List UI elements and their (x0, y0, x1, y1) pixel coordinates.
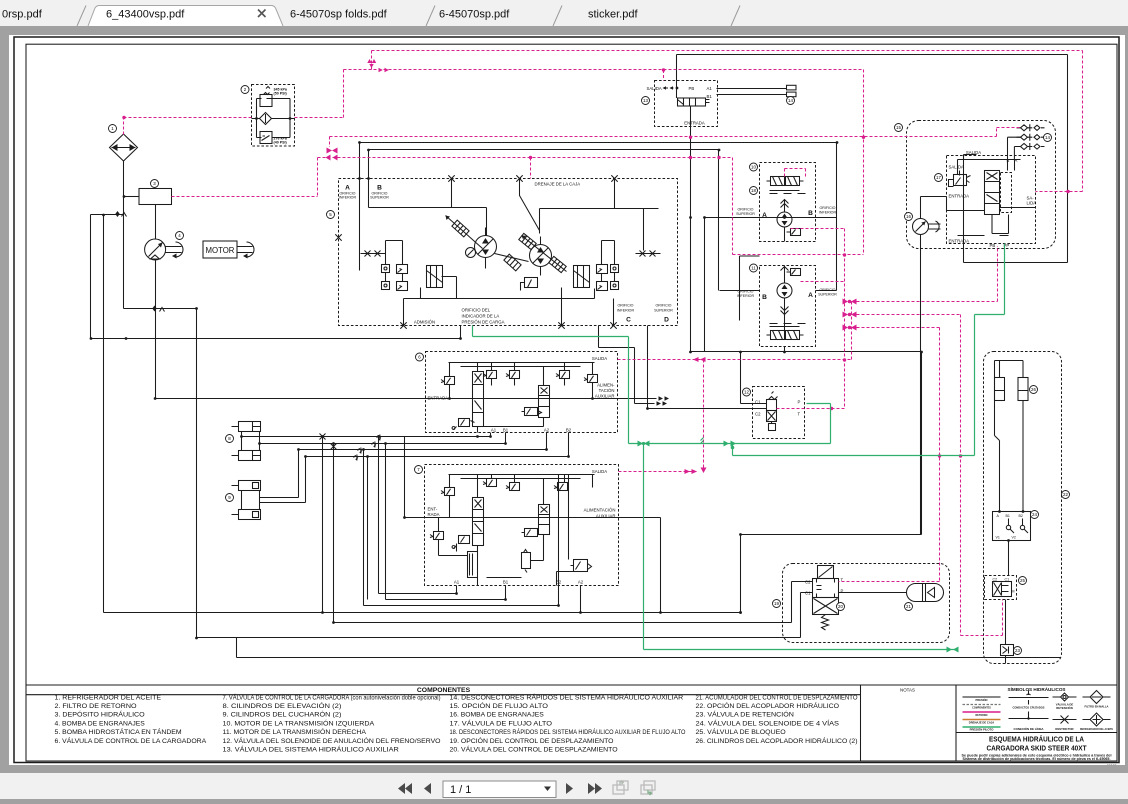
svg-text:SUPERIOR: SUPERIOR (736, 212, 755, 216)
svg-text:ORIFICIO: ORIFICIO (618, 304, 634, 308)
svg-text:COMPONENTES: COMPONENTES (972, 705, 991, 709)
svg-text:7. VÁLVULA DE CONTROL DE LA CA: 7. VÁLVULA DE CONTROL DE LA CARGADORA (c… (223, 692, 441, 701)
svg-text:PRESIÓN PILOTO: PRESIÓN PILOTO (970, 727, 995, 732)
svg-text:SALIDA: SALIDA (592, 469, 607, 474)
svg-text:SUPERIOR: SUPERIOR (370, 196, 389, 200)
svg-text:17: 17 (936, 175, 941, 180)
svg-text:9. CILINDROS DEL CUCHARÓN (2): 9. CILINDROS DEL CUCHARÓN (2) (223, 710, 342, 719)
svg-text:INFERIOR: INFERIOR (339, 196, 357, 200)
svg-text:SALIDA: SALIDA (647, 86, 662, 91)
svg-text:LIDA: LIDA (1027, 201, 1037, 206)
svg-text:ORIFICIO DEL: ORIFICIO DEL (462, 308, 491, 313)
svg-text:ORIFICIO: ORIFICIO (738, 208, 754, 212)
svg-text:8. CILINDROS DE ELEVACIÓN (2): 8. CILINDROS DE ELEVACIÓN (2) (223, 701, 342, 710)
svg-text:20: 20 (838, 604, 843, 609)
svg-text:17. VÁLVULA DE FLUJO ALTO: 17. VÁLVULA DE FLUJO ALTO (450, 718, 553, 727)
svg-text:B1: B1 (1006, 514, 1010, 518)
svg-text:A: A (808, 292, 813, 299)
svg-text:22. OPCIÓN DEL ACOPLADOR HIDRÁ: 22. OPCIÓN DEL ACOPLADOR HIDRÁULICO (696, 701, 840, 710)
svg-text:18: 18 (751, 188, 756, 193)
svg-text:SALIDA: SALIDA (966, 150, 981, 155)
svg-text:13: 13 (643, 98, 648, 103)
svg-text:FILTRO EN MALLA: FILTRO EN MALLA (1085, 705, 1109, 709)
svg-text:C1: C1 (805, 591, 811, 596)
svg-text:B2: B2 (1019, 514, 1023, 518)
svg-text:AUXILIAR: AUXILIAR (596, 514, 616, 519)
svg-text:1 / 1: 1 / 1 (450, 784, 471, 796)
svg-text:CONDUCTOS CRUZADOS: CONDUCTOS CRUZADOS (1013, 706, 1045, 710)
svg-text:INFERIOR: INFERIOR (617, 309, 635, 313)
svg-text:10: 10 (751, 165, 756, 170)
svg-text:B1: B1 (503, 580, 509, 585)
svg-text:SUPERIOR: SUPERIOR (818, 293, 837, 297)
svg-text:REFRIGERADOR DEL ACEITE: REFRIGERADOR DEL ACEITE (1080, 727, 1113, 731)
svg-text:26: 26 (1031, 387, 1036, 392)
svg-text:B1: B1 (707, 94, 713, 99)
svg-text:RETENCIÓN: RETENCIÓN (1056, 705, 1072, 710)
svg-text:P: P (798, 400, 801, 405)
svg-text:B: B (808, 210, 813, 217)
svg-text:A2: A2 (578, 580, 584, 585)
svg-text:23. VÁLVULA DE RETENCIÓN: 23. VÁLVULA DE RETENCIÓN (696, 710, 795, 719)
svg-text:sticker.pdf: sticker.pdf (588, 9, 638, 21)
svg-text:26. CILINDROS DEL ACOPLADOR HI: 26. CILINDROS DEL ACOPLADOR HIDRÁULICO (… (696, 736, 858, 745)
svg-text:INFERIOR: INFERIOR (819, 211, 837, 215)
svg-text:RETORNO: RETORNO (976, 713, 989, 717)
svg-text:22: 22 (1063, 492, 1068, 497)
svg-text:13. VÁLVULA DEL SISTEMA HIDRÁU: 13. VÁLVULA DEL SISTEMA HIDRÁULICO AUXIL… (223, 745, 400, 754)
svg-text:DRENAJE DE LA CAJA: DRENAJE DE LA CAJA (535, 182, 581, 187)
svg-text:B: B (762, 294, 767, 301)
svg-text:SUPERIOR: SUPERIOR (654, 309, 673, 313)
svg-text:C1: C1 (755, 400, 761, 405)
svg-text:24. VÁLVULA DEL SOLENOIDE DE 4: 24. VÁLVULA DEL SOLENOIDE DE 4 VÍAS (696, 718, 840, 727)
svg-text:A: A (345, 185, 350, 192)
svg-text:B2: B2 (566, 428, 572, 433)
svg-text:TACIÓN: TACIÓN (599, 388, 615, 393)
svg-text:A2: A2 (544, 428, 550, 433)
svg-text:RADA: RADA (428, 512, 440, 517)
svg-text:4. BOMBA DE ENGRANAJES: 4. BOMBA DE ENGRANAJES (55, 720, 146, 727)
svg-text:C2: C2 (805, 580, 811, 585)
svg-text:A1: A1 (707, 86, 713, 91)
svg-text:15. OPCIÓN DE FLUJO ALTO: 15. OPCIÓN DE FLUJO ALTO (450, 701, 548, 710)
svg-text:15: 15 (896, 125, 901, 130)
svg-text:RESTRICTOR: RESTRICTOR (1055, 727, 1073, 731)
svg-text:A1: A1 (491, 428, 497, 433)
svg-text:ORIFICIO: ORIFICIO (656, 304, 672, 308)
svg-text:10. MOTOR DE LA TRANSMISIÓN IZ: 10. MOTOR DE LA TRANSMISIÓN IZQUIERDA (223, 718, 375, 727)
svg-text:V2: V2 (1012, 536, 1016, 540)
svg-text:11: 11 (751, 266, 756, 271)
svg-text:20. VÁLVULA DEL CONTROL DE DES: 20. VÁLVULA DEL CONTROL DE DESPLAZAMIENT… (450, 745, 618, 754)
svg-text:NOTAS: NOTAS (900, 688, 915, 693)
svg-text:CARGADORA SKID STEER 40XT: CARGADORA SKID STEER 40XT (987, 744, 1087, 753)
svg-text:COMPONENTES: COMPONENTES (417, 687, 471, 694)
svg-text:ENTRADA: ENTRADA (428, 396, 449, 401)
svg-text:3. DEPÓSITO HIDRÁULICO: 3. DEPÓSITO HIDRÁULICO (55, 710, 145, 719)
svg-text:PB: PB (689, 86, 695, 91)
svg-text:C1: C1 (1005, 578, 1010, 582)
svg-text:M: M (1012, 590, 1015, 594)
svg-text:ENTRADA: ENTRADA (684, 121, 705, 126)
svg-text:21. ACUMULADOR DEL CONTROL DE: 21. ACUMULADOR DEL CONTROL DE DESPLAZAMI… (696, 694, 858, 701)
svg-text:16: 16 (906, 214, 911, 219)
svg-text:B: B (377, 185, 382, 192)
svg-text:6_43400vsp.pdf: 6_43400vsp.pdf (106, 9, 185, 21)
svg-text:ENTRADA: ENTRADA (949, 239, 970, 244)
svg-text:INDICADOR DE LA: INDICADOR DE LA (462, 314, 500, 319)
svg-text:1. REFRIGERADOR DEL ACEITE: 1. REFRIGERADOR DEL ACEITE (55, 694, 162, 701)
svg-text:T: T (798, 412, 801, 417)
svg-text:11. MOTOR DE LA TRANSMISIÓN DE: 11. MOTOR DE LA TRANSMISIÓN DERECHA (223, 727, 367, 736)
svg-text:MOTOR: MOTOR (206, 246, 235, 255)
svg-text:25: 25 (1020, 578, 1025, 583)
svg-text:ENT-: ENT- (428, 507, 438, 512)
svg-text:19. OPCIÓN DEL CONTROL DE DESP: 19. OPCIÓN DEL CONTROL DE DESPLAZAMIENTO (450, 736, 614, 745)
svg-text:A: A (997, 514, 1000, 518)
svg-text:DRENAJE DE CAJA: DRENAJE DE CAJA (969, 720, 995, 724)
svg-text:AUXILIAR: AUXILIAR (595, 394, 615, 399)
svg-text:16. BOMBA DE ENGRANAJES: 16. BOMBA DE ENGRANAJES (450, 712, 545, 719)
svg-text:C: C (626, 317, 631, 324)
svg-text:23: 23 (1015, 648, 1020, 653)
svg-text:CONEXIÓN DE LÍNEA: CONEXIÓN DE LÍNEA (1014, 726, 1044, 731)
svg-text:SALIDA: SALIDA (592, 356, 607, 361)
svg-text:6-45070sp.pdf: 6-45070sp.pdf (439, 9, 510, 21)
svg-text:25. VÁLVULA DE BLOQUEO: 25. VÁLVULA DE BLOQUEO (696, 727, 786, 736)
svg-text:ADMISIÓN: ADMISIÓN (414, 320, 435, 325)
svg-text:B1: B1 (503, 428, 509, 433)
svg-text:SALIDA: SALIDA (949, 165, 964, 170)
svg-text:45065: 45065 (1107, 764, 1117, 765)
svg-text:ALIMEN-: ALIMEN- (597, 383, 615, 388)
svg-text:19: 19 (774, 601, 779, 606)
svg-text:6-45070sp folds.pdf: 6-45070sp folds.pdf (290, 9, 388, 21)
svg-text:D: D (664, 317, 669, 324)
svg-text:5. BOMBA HIDROSTÁTICA EN TÁNDE: 5. BOMBA HIDROSTÁTICA EN TÁNDEM (55, 727, 182, 736)
svg-text:0rsp.pdf: 0rsp.pdf (2, 9, 43, 21)
svg-text:ESQUEMA HIDRÁULICO DE LA: ESQUEMA HIDRÁULICO DE LA (989, 735, 1084, 744)
svg-text:(50 PSI): (50 PSI) (274, 92, 288, 96)
svg-text:2. FILTRO DE RETORNO: 2. FILTRO DE RETORNO (55, 703, 137, 710)
svg-text:24: 24 (1032, 512, 1037, 517)
svg-text:12. VÁLVULA DEL SOLENOIDE DE A: 12. VÁLVULA DEL SOLENOIDE DE ANULACIÓN D… (223, 736, 441, 745)
svg-text:6. VÁLVULA DE CONTROL DE LA CA: 6. VÁLVULA DE CONTROL DE LA CARGADORA (55, 736, 207, 745)
svg-text:14: 14 (1045, 135, 1050, 140)
svg-text:14: 14 (788, 98, 793, 103)
svg-text:PRESIÓN DE CARGA: PRESIÓN DE CARGA (462, 320, 505, 325)
svg-text:ENTRADA: ENTRADA (949, 194, 970, 199)
svg-text:(40 PSI): (40 PSI) (274, 141, 288, 145)
svg-text:C2: C2 (755, 412, 761, 417)
svg-text:PRESIÓN: PRESIÓN (976, 697, 988, 702)
svg-text:14. DESCONECTORES RÁPIDOS DEL: 14. DESCONECTORES RÁPIDOS DEL SISTEMA HI… (450, 692, 684, 701)
svg-text:ALIMENTACIÓN: ALIMENTACIÓN (584, 508, 616, 513)
svg-text:12: 12 (744, 390, 749, 395)
svg-text:SÍMBOLOS HIDRÁULICOS: SÍMBOLOS HIDRÁULICOS (1008, 687, 1066, 692)
svg-text:18. DESCONECTORES RÁPIDOS DEL: 18. DESCONECTORES RÁPIDOS DEL SISTEMA HI… (450, 727, 686, 736)
svg-text:PB: PB (990, 243, 996, 248)
svg-text:A1: A1 (454, 580, 460, 585)
svg-text:21: 21 (906, 604, 911, 609)
svg-text:ORIFICIO: ORIFICIO (820, 206, 836, 210)
svg-text:C2: C2 (993, 578, 998, 582)
svg-text:Sistema de distribución de pub: Sistema de distribución de publicaciones… (963, 757, 1111, 761)
svg-text:V1: V1 (996, 536, 1000, 540)
